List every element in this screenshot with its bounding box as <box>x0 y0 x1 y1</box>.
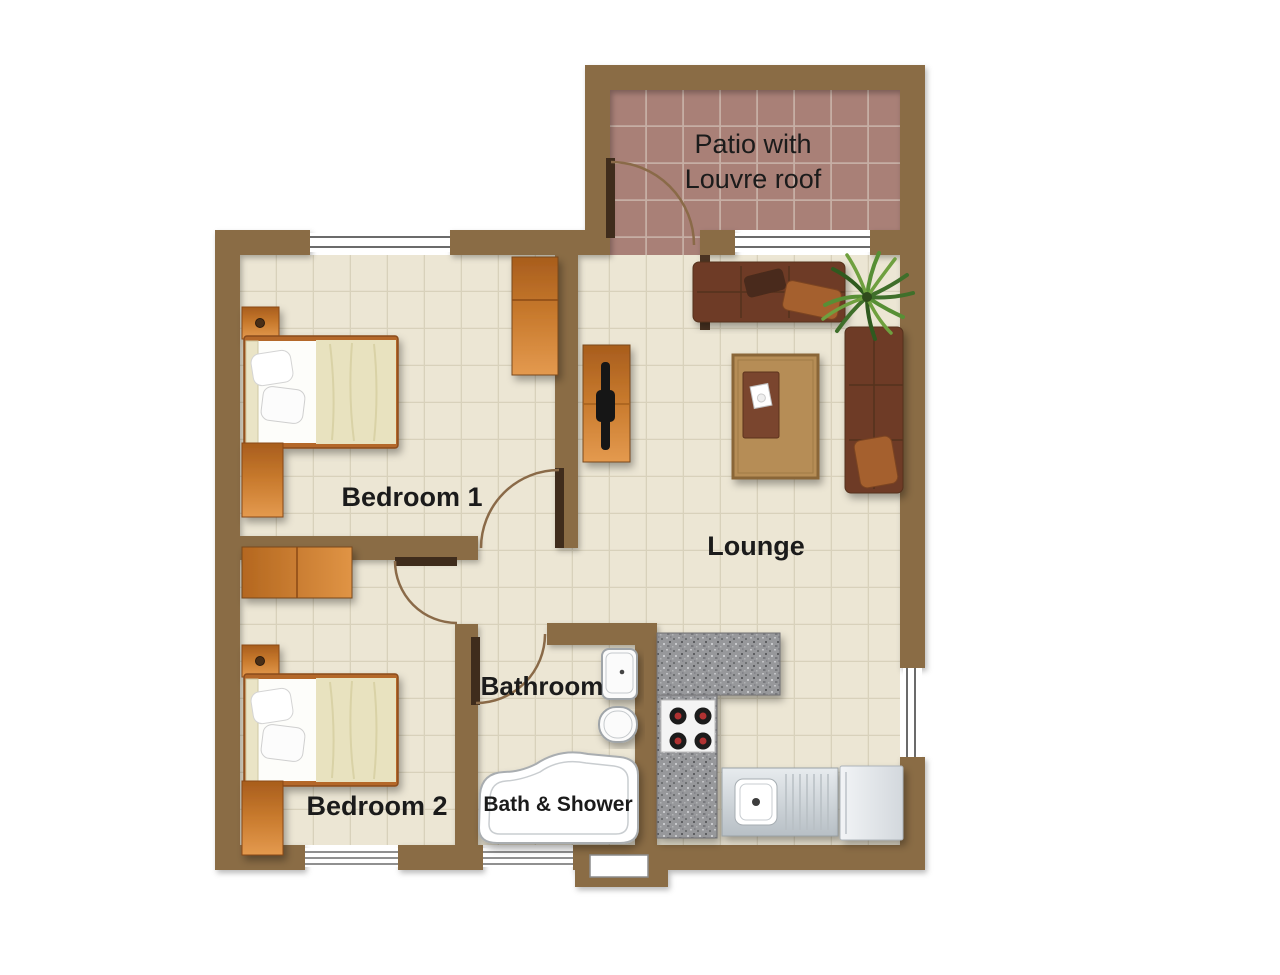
patio-label-line2: Louvre roof <box>685 164 822 194</box>
window-bedroom2 <box>305 848 398 867</box>
lounge-label: Lounge <box>707 531 804 561</box>
bath-shower-label: Bath & Shower <box>483 793 632 816</box>
patio-door-leaf <box>606 158 615 238</box>
sofa-top <box>693 262 845 322</box>
bathroom-label: Bathroom <box>481 671 604 701</box>
bumpout-window <box>590 855 648 877</box>
window-right-wall <box>903 668 922 757</box>
bedroom1-wardrobe <box>512 257 558 375</box>
floor-plan-svg: Patio with Louvre roof Bedroom 1 Lounge … <box>0 0 1280 975</box>
window-patio-lounge <box>735 233 870 252</box>
bedroom2-label: Bedroom 2 <box>306 791 447 821</box>
wall-patio-top <box>585 65 925 90</box>
wall-right-upper <box>900 65 925 668</box>
bathroom-door-leaf <box>471 637 480 705</box>
bedroom1-label: Bedroom 1 <box>341 482 482 512</box>
window-bedroom1 <box>310 233 450 252</box>
sink-unit <box>722 768 838 836</box>
kitchen-counter-top <box>657 633 780 695</box>
wall-left <box>215 255 240 870</box>
window-bathroom <box>483 848 573 867</box>
floor-plan-canvas: Patio with Louvre roof Bedroom 1 Lounge … <box>0 0 1280 975</box>
wash-basin <box>602 649 637 699</box>
fridge <box>840 766 903 840</box>
bedroom2-door-leaf <box>395 557 457 566</box>
throw-cushion <box>853 435 899 489</box>
wall-patio-bottom-right <box>870 230 900 255</box>
patio-label-line1: Patio with <box>694 129 811 159</box>
wall-patio-bottom-pillar <box>700 230 735 255</box>
sofa-right <box>845 327 903 493</box>
tv-stand <box>583 345 630 462</box>
toilet <box>599 707 637 742</box>
rug-and-table <box>733 355 818 478</box>
sink-drain <box>752 798 760 806</box>
wall-top-mid <box>450 230 610 255</box>
wall-top-left <box>215 230 310 255</box>
wall-bottom-2 <box>398 845 483 870</box>
bedroom1-door-leaf <box>555 468 564 548</box>
